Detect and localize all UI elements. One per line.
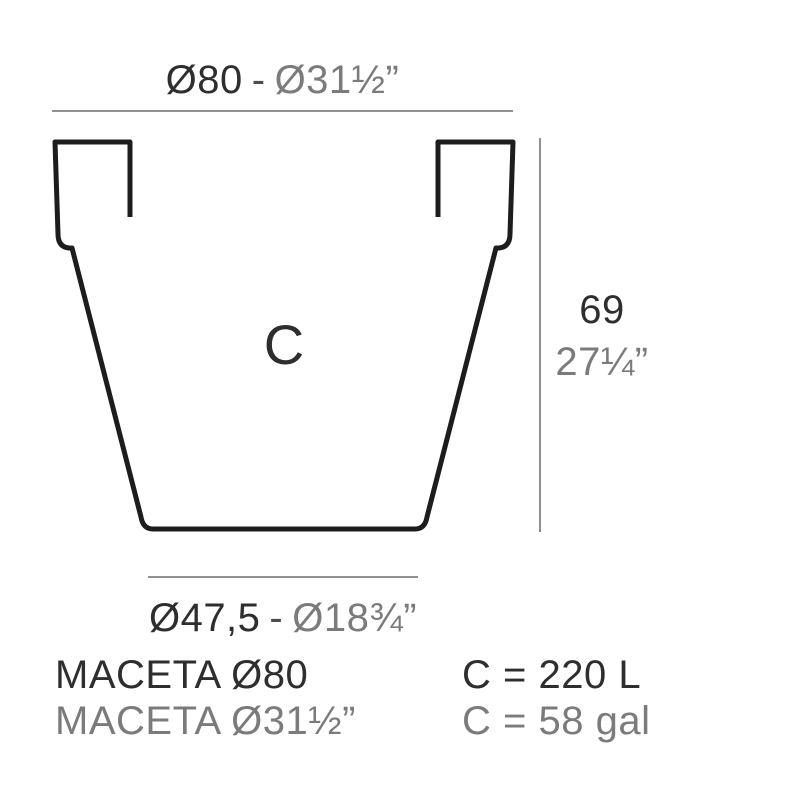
capacity-letter: C bbox=[254, 312, 314, 377]
product-name-block: MACETA Ø80 MACETA Ø31½” bbox=[55, 652, 356, 744]
top-diameter-metric: Ø80 bbox=[166, 58, 243, 102]
bottom-diameter-imperial: Ø18¾” bbox=[292, 596, 417, 640]
height-dimension-label: 69 27¼” bbox=[540, 284, 664, 388]
top-diameter-label: Ø80-Ø31½” bbox=[52, 58, 513, 103]
top-diameter-separator: - bbox=[252, 58, 266, 102]
height-metric: 69 bbox=[540, 284, 664, 336]
product-name-imperial: MACETA Ø31½” bbox=[55, 698, 356, 744]
planter-spec-sheet: Ø80-Ø31½” C 69 27¼” Ø47,5-Ø18¾” MACETA Ø… bbox=[0, 0, 800, 800]
product-name-metric: MACETA Ø80 bbox=[55, 652, 356, 698]
capacity-value-block: C = 220 L C = 58 gal bbox=[462, 652, 650, 744]
top-diameter-imperial: Ø31½” bbox=[275, 58, 400, 102]
bottom-diameter-separator: - bbox=[269, 596, 283, 640]
bottom-diameter-metric: Ø47,5 bbox=[149, 596, 260, 640]
capacity-gallons: C = 58 gal bbox=[462, 698, 650, 744]
bottom-diameter-label: Ø47,5-Ø18¾” bbox=[128, 596, 438, 641]
capacity-liters: C = 220 L bbox=[462, 652, 650, 698]
height-imperial: 27¼” bbox=[540, 336, 664, 388]
